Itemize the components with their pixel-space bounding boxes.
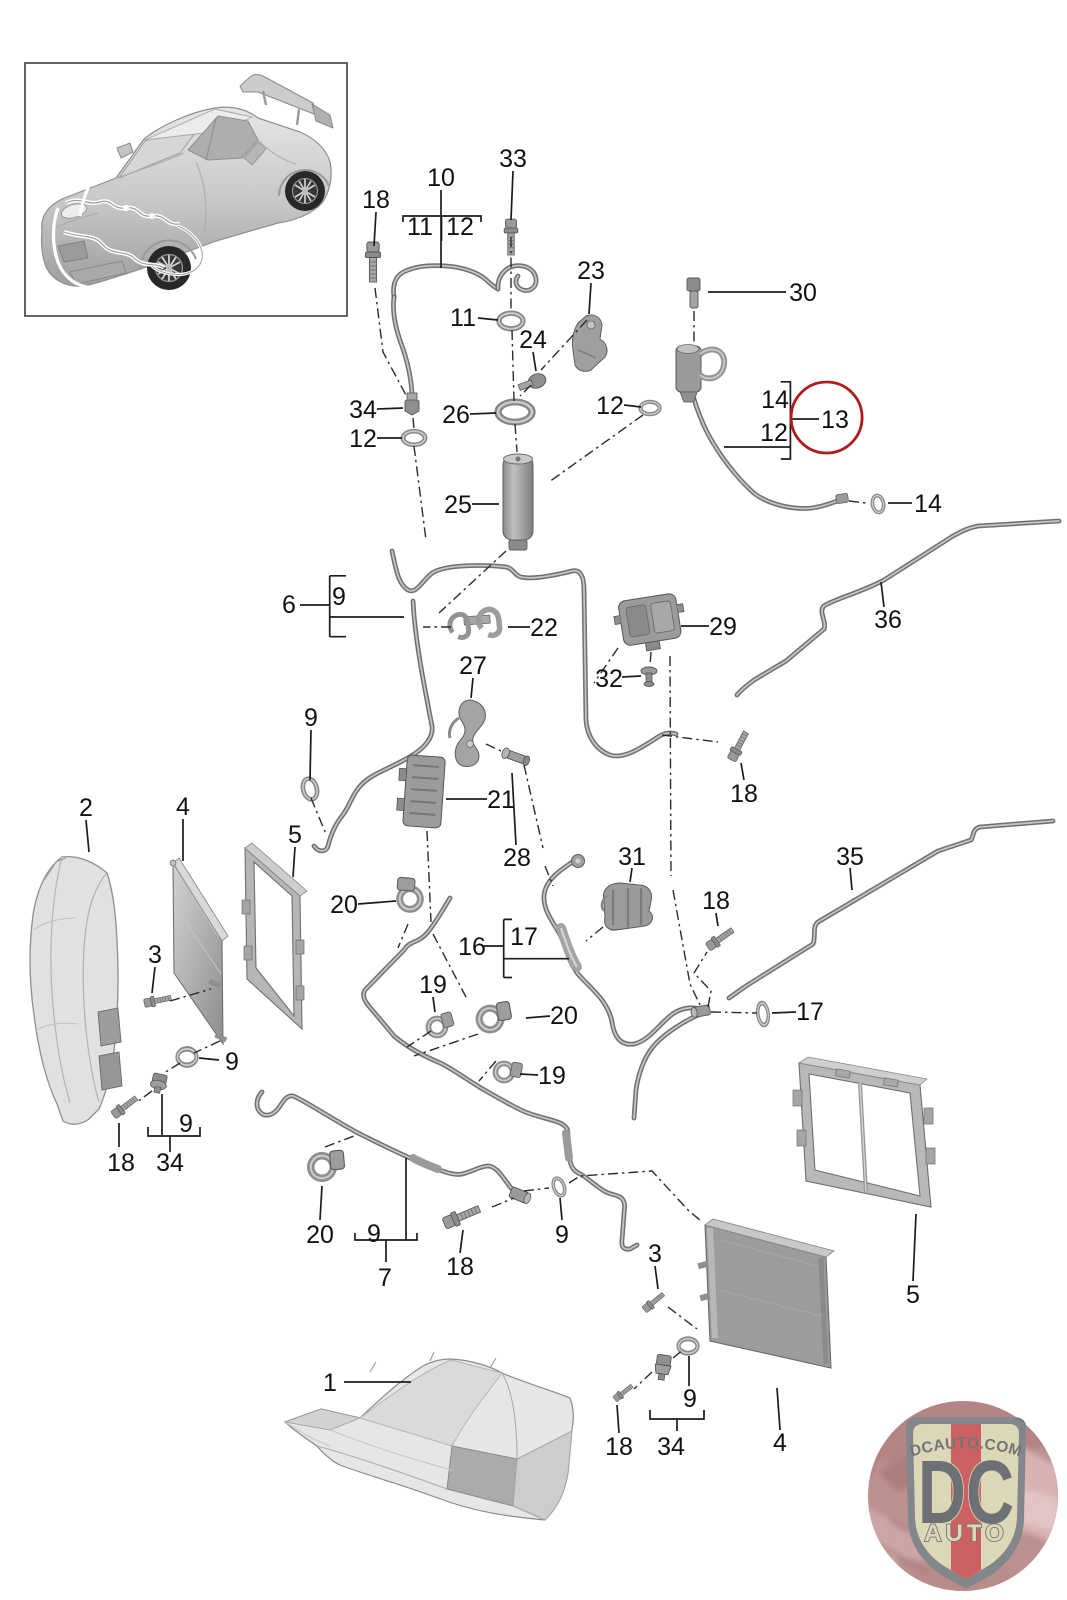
svg-text:18: 18	[702, 887, 730, 915]
svg-text:18: 18	[730, 780, 758, 808]
svg-text:11: 11	[407, 213, 433, 241]
svg-text:12: 12	[760, 419, 788, 447]
svg-text:3: 3	[648, 1240, 662, 1268]
svg-text:4: 4	[773, 1429, 787, 1457]
svg-text:7: 7	[378, 1264, 392, 1292]
svg-text:9: 9	[367, 1220, 381, 1248]
svg-text:36: 36	[874, 606, 902, 634]
svg-text:20: 20	[330, 891, 358, 919]
svg-text:9: 9	[225, 1048, 239, 1076]
svg-text:21: 21	[487, 786, 515, 814]
svg-text:14: 14	[761, 386, 789, 414]
svg-text:12: 12	[349, 425, 377, 453]
svg-text:30: 30	[789, 279, 817, 307]
svg-text:19: 19	[419, 971, 447, 999]
svg-text:18: 18	[446, 1253, 474, 1281]
svg-text:9: 9	[555, 1221, 569, 1249]
svg-text:4: 4	[176, 793, 190, 821]
svg-text:33: 33	[499, 145, 527, 173]
svg-text:6: 6	[282, 591, 296, 619]
svg-text:11: 11	[450, 304, 476, 332]
svg-text:18: 18	[107, 1149, 135, 1177]
svg-text:34: 34	[349, 396, 377, 424]
svg-text:31: 31	[618, 843, 646, 871]
svg-text:1: 1	[323, 1369, 337, 1397]
svg-text:10: 10	[427, 164, 455, 192]
svg-text:9: 9	[683, 1385, 697, 1413]
svg-text:20: 20	[550, 1002, 578, 1030]
svg-text:27: 27	[459, 652, 487, 680]
svg-text:32: 32	[595, 665, 623, 693]
svg-text:23: 23	[577, 257, 605, 285]
svg-text:18: 18	[362, 186, 390, 214]
svg-text:17: 17	[796, 998, 824, 1026]
svg-text:34: 34	[156, 1149, 184, 1177]
svg-text:18: 18	[605, 1433, 633, 1461]
svg-text:9: 9	[304, 704, 318, 732]
svg-text:9: 9	[332, 583, 346, 611]
svg-text:26: 26	[442, 401, 470, 429]
svg-text:24: 24	[519, 326, 547, 354]
svg-text:19: 19	[538, 1062, 566, 1090]
svg-text:35: 35	[836, 843, 864, 871]
svg-text:25: 25	[444, 491, 472, 519]
svg-text:12: 12	[596, 392, 624, 420]
svg-text:17: 17	[510, 923, 538, 951]
svg-text:29: 29	[709, 613, 737, 641]
svg-text:22: 22	[530, 614, 558, 642]
svg-text:28: 28	[503, 844, 531, 872]
svg-text:13: 13	[821, 406, 849, 434]
svg-text:34: 34	[657, 1433, 685, 1461]
svg-text:5: 5	[906, 1281, 920, 1309]
svg-text:9: 9	[179, 1110, 193, 1138]
svg-text:2: 2	[79, 794, 93, 822]
svg-text:3: 3	[148, 941, 162, 969]
svg-text:5: 5	[288, 821, 302, 849]
svg-text:14: 14	[914, 490, 942, 518]
svg-text:12: 12	[446, 213, 474, 241]
svg-text:20: 20	[306, 1221, 334, 1249]
svg-text:16: 16	[458, 933, 486, 961]
